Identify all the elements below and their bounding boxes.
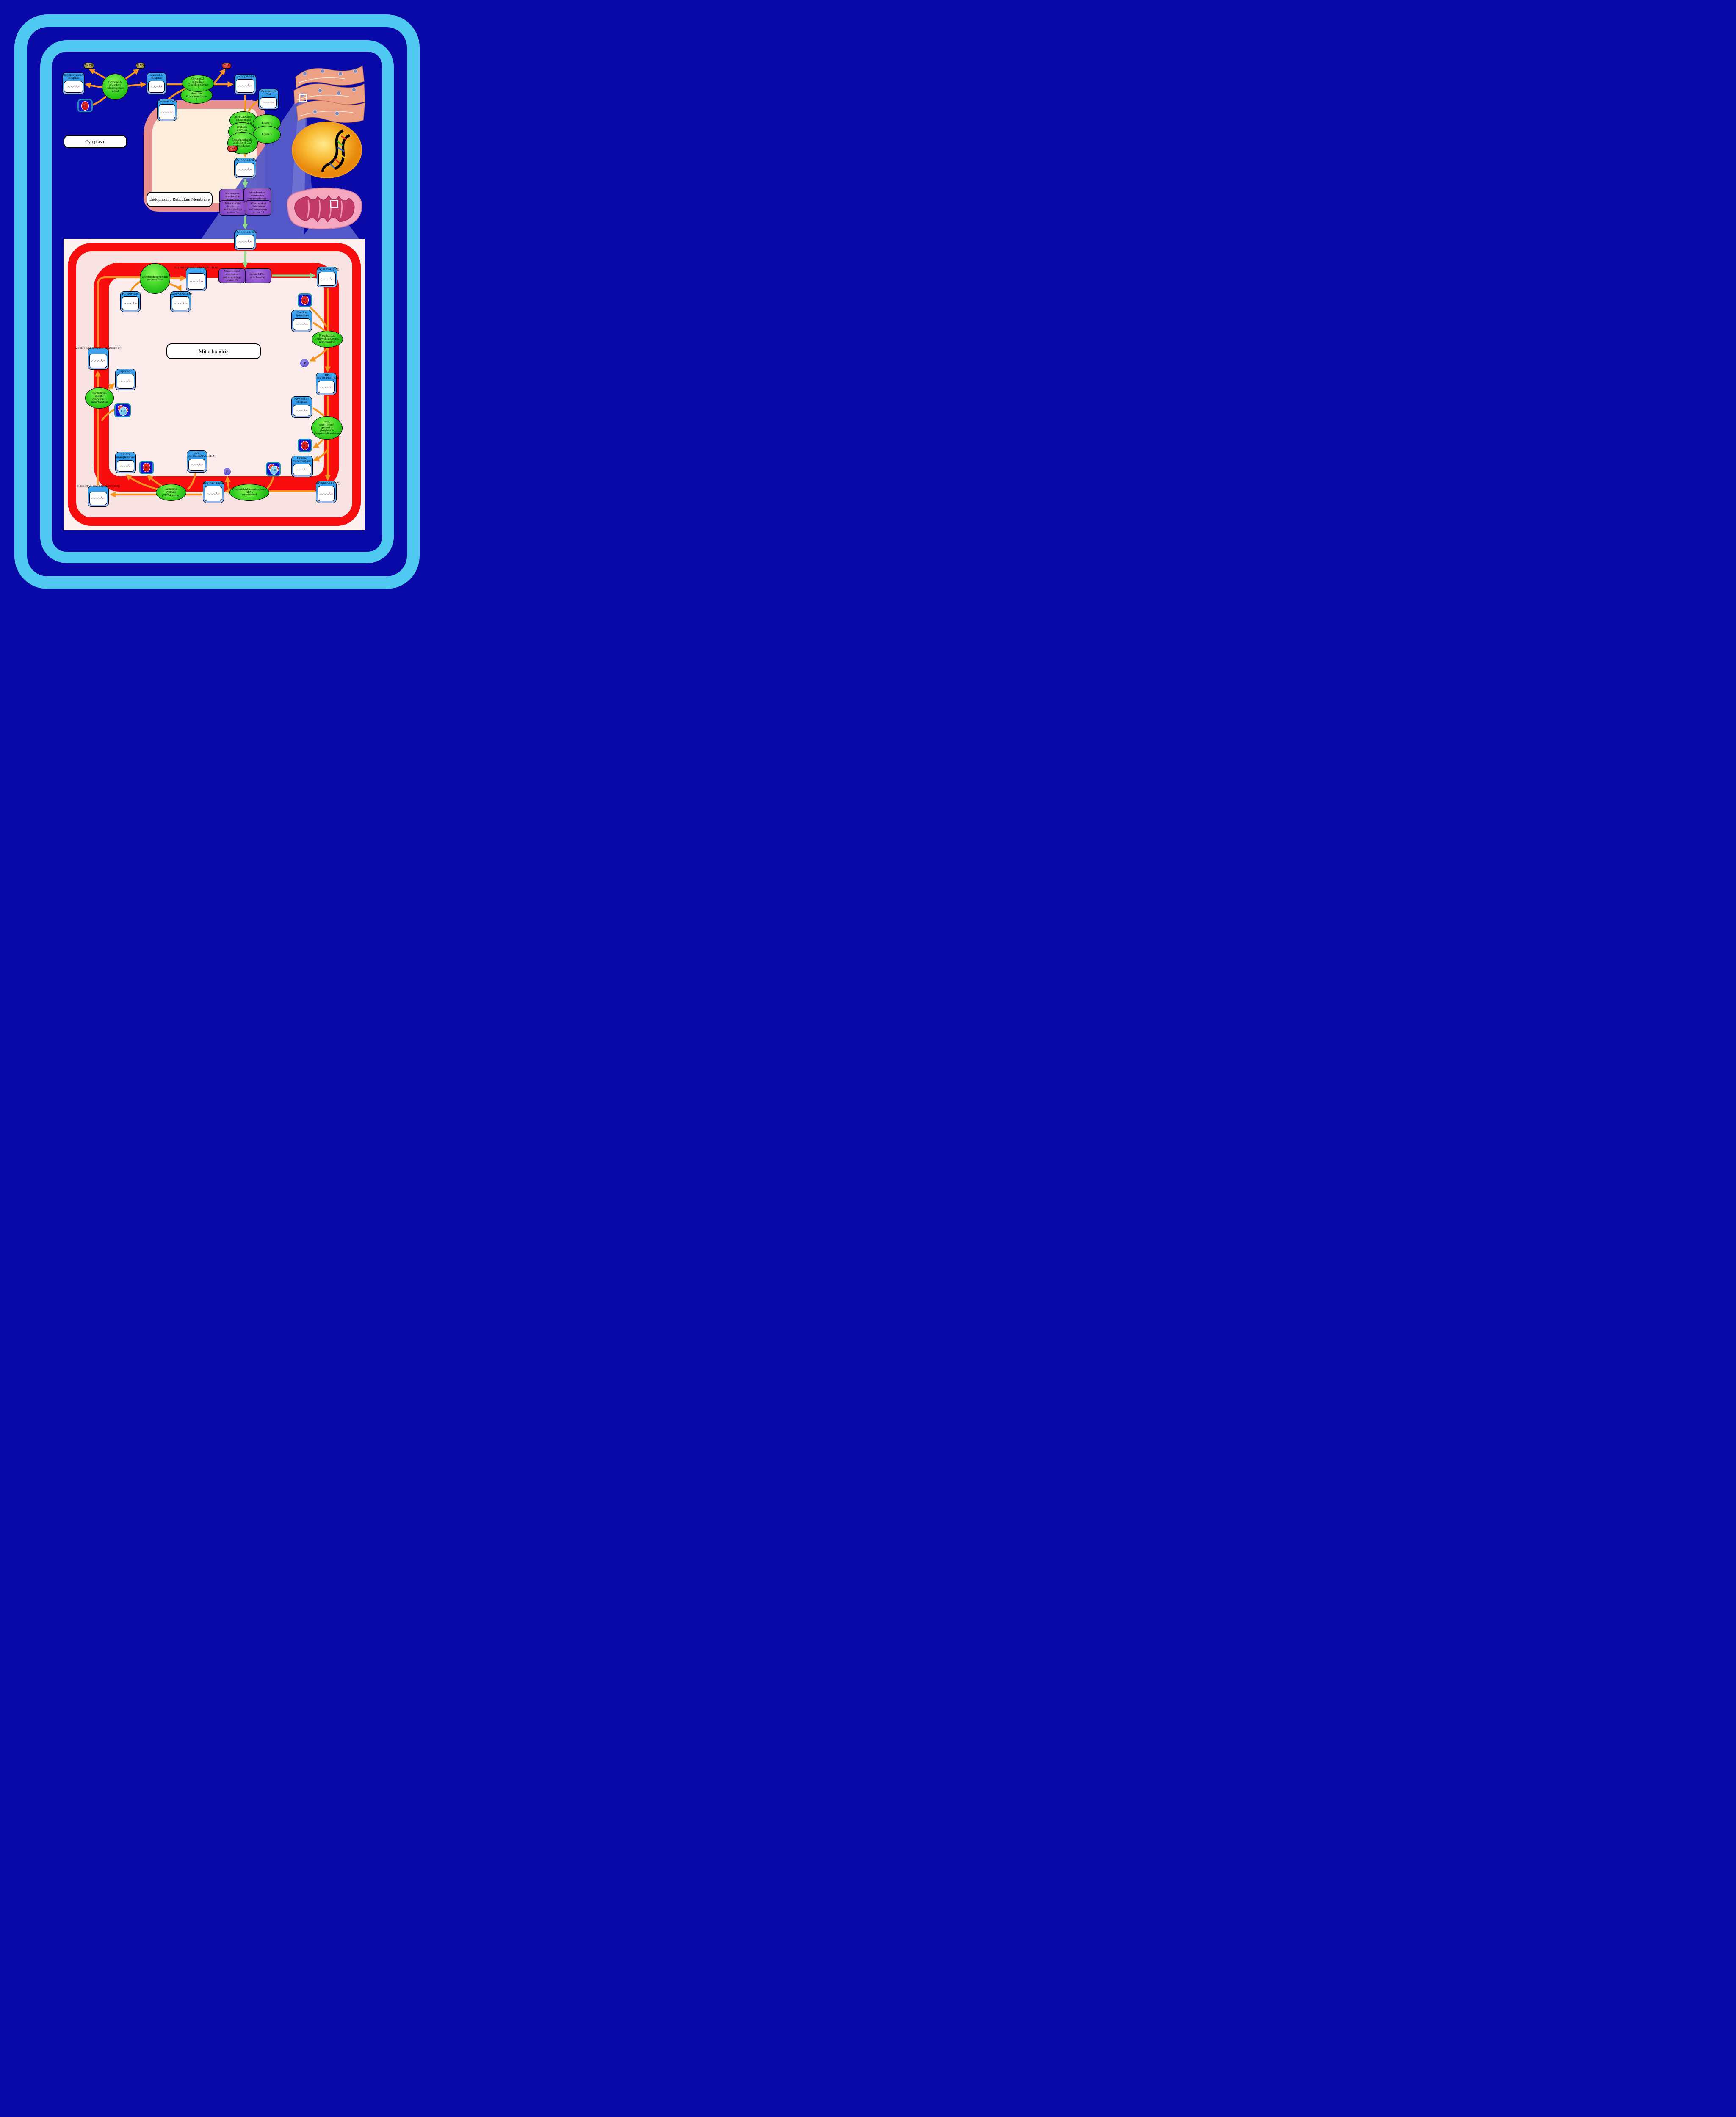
- metabolite-name: LysoPC(10:0/0:0): [171, 292, 191, 296]
- metabolite-dhap[interactable]: Dihydroxyacetone phosphate: [62, 72, 85, 94]
- molecule-structure-icon: [89, 492, 107, 505]
- metabolite-name: LysoPA(10:0/0:0): [235, 75, 256, 79]
- protein-name-line: and morphology: [249, 208, 267, 211]
- metabolite-capric-acid[interactable]: Capric acid: [115, 369, 136, 390]
- enzyme-name-line: O-acyltransferase: [186, 95, 207, 98]
- enzyme-name-line: Glycerol-3-: [191, 77, 205, 80]
- metabolite-lysopc[interactable]: LysoPC(10:0/0:0): [170, 291, 191, 312]
- protein-name-line: protein 10: [253, 211, 264, 214]
- enzyme-name-line: Probable: [237, 126, 247, 129]
- compartment-label-cytoplasm: Cytoplasm: [64, 135, 127, 148]
- enzyme-name-line: phosphatidyltransferase: [314, 432, 340, 435]
- er-zoom-square: [299, 94, 307, 102]
- protein-name-line: Mitochondrial: [225, 202, 241, 205]
- molecule-structure-icon: [159, 104, 175, 119]
- enzyme-gep4[interactable]: PhosphatidylglycerophosphataseGEP4,mitoc…: [229, 484, 269, 501]
- enzyme-name-line: Cardiolipin-: [92, 392, 106, 395]
- molecule-structure-icon: [148, 81, 165, 93]
- metabolite-cdpdg-bottom[interactable]: CDP-DG(15:1(9Z)/25:1(11Z)): [187, 450, 207, 473]
- protein-mdm34[interactable]: Mitochondrialdistributionand morphologyp…: [219, 200, 246, 216]
- enzyme-name-line: mitochondrial: [91, 401, 108, 404]
- token-hplus-topright[interactable]: H+: [298, 293, 312, 307]
- metabolite-name: CDP-DG(10:0/14:1(9Z)): [316, 373, 336, 381]
- hplus-icon: H+: [301, 296, 309, 305]
- metabolite-name: PA(10:0/14:1(9Z)): [235, 230, 256, 235]
- enzyme-name-line: Cardiolipin: [165, 488, 178, 491]
- enzyme-name-line: acid:oleoyl-CoA: [233, 141, 252, 144]
- molecule-structure-icon: [236, 163, 254, 177]
- enzyme-name-line: phosphate: [109, 84, 121, 87]
- enzyme-pcyt-mito[interactable]: Phosphatidatecytidylyltransferase,mitoch…: [312, 331, 343, 348]
- token-nadh[interactable]: NADH: [84, 63, 94, 69]
- molecule-structure-icon: [318, 486, 335, 501]
- metabolite-g3p-er[interactable]: Glycerol 3-phosphate: [147, 72, 166, 94]
- protein-name-line: Maintenance: [225, 192, 240, 195]
- molecule-structure-icon: [117, 374, 134, 389]
- protein-name-line: and morphology: [224, 208, 242, 211]
- metabolite-name: Capric acid: [116, 369, 135, 373]
- metabolite-name: Cytidine monophosphate: [292, 456, 312, 464]
- token-coa-2[interactable]: CoA: [227, 146, 238, 152]
- protein-ups1[interactable]: protein UPS1,mitochondrial: [243, 268, 271, 283]
- molecule-structure-icon: [293, 464, 311, 475]
- mitochondrion-cartoon: [280, 184, 365, 232]
- water-icon: H2O: [117, 405, 128, 415]
- metabolite-name: Glycerol 3-phosphate: [147, 73, 166, 80]
- molecule-structure-icon: [293, 405, 310, 416]
- enzyme-name-line: 1-acyl-sn-: [236, 129, 248, 132]
- molecule-structure-icon: [172, 296, 189, 310]
- metabolite-label-cl-bottom: CL(10:0/14:1(9Z)/15:1(9Z)/25:1(11Z)): [77, 485, 120, 488]
- protein-name-line: and morphology: [223, 276, 241, 279]
- metabolite-name: CDP-DG(15:1(9Z)/25:1(11Z)): [187, 451, 207, 459]
- enzyme-name-line: cytidylyltransferase,: [315, 337, 339, 340]
- metabolite-pg[interactable]: PG(10:0/14:1(9Z)): [203, 481, 224, 503]
- metabolite-decanoyl-coa[interactable]: Decanoyl-CoA: [157, 99, 177, 121]
- molecule-structure-icon: [318, 381, 335, 393]
- metabolite-cl-top[interactable]: [186, 268, 207, 291]
- protein-name-line: distribution: [226, 273, 238, 276]
- enzyme-name-line: Phosphatidate: [319, 334, 335, 337]
- metabolite-name: Cytidine monophosphate: [116, 452, 135, 460]
- protein-name-line: protein 35: [227, 279, 238, 282]
- enzyme-cls[interactable]: Cardiolipinsynthase(CMP-forming): [156, 484, 186, 501]
- molecule-structure-icon: [293, 318, 310, 330]
- enzyme-name-line: Lysophosphatidic: [232, 138, 253, 141]
- enzyme-name-line: mitochondrial: [242, 494, 257, 496]
- enzyme-name-line: (CMP-forming): [162, 494, 180, 497]
- metabolite-name: PA(10:0/14:1(9Z)): [317, 267, 337, 271]
- protein-name-line: mitochondrial: [250, 276, 265, 279]
- compartment-label-mitochondria: Mitochondria: [166, 343, 261, 359]
- token-h2o-left[interactable]: H2O: [114, 403, 131, 417]
- molecule-structure-icon: [205, 486, 222, 501]
- metabolite-name: PA(10:0/14:1(9Z)): [235, 158, 256, 163]
- metabolite-pa-mid[interactable]: PA(10:0/14:1(9Z)): [234, 230, 256, 250]
- protein-name-line: Mitochondrial: [224, 270, 240, 273]
- molecule-structure-icon: [122, 296, 139, 310]
- metabolite-pc[interactable]: PC(10:0/10:0): [120, 291, 141, 312]
- protein-name-line: mitochondrial: [225, 195, 240, 198]
- protein-name-line: distribution: [252, 205, 265, 208]
- token-pi[interactable]: Pi: [223, 467, 231, 476]
- metabolite-pa-right[interactable]: PA(10:0/14:1(9Z)): [317, 267, 337, 287]
- molecule-structure-icon: [117, 460, 134, 472]
- metabolite-name: PGP(10:0/14:1(9Z)): [316, 481, 336, 486]
- token-coa-1[interactable]: CoA: [222, 63, 231, 69]
- protein-name-line: Mitochondrial: [250, 202, 266, 205]
- enzyme-name-line: Glycerol-3-: [108, 81, 122, 84]
- molecule-structure-icon: [260, 97, 277, 108]
- metabolite-name: Cytidine triphosphate: [292, 310, 312, 318]
- enzyme-name-line: Lipase 4: [262, 122, 271, 124]
- enzyme-name-line: mitochondrial: [319, 341, 335, 344]
- token-ppi[interactable]: PPi: [300, 359, 309, 368]
- enzyme-name-line: acyltransferase: [147, 279, 163, 281]
- metabolite-name: Decanoyl-CoA: [158, 99, 177, 104]
- metabolite-cl-bottom[interactable]: [88, 486, 109, 507]
- token-hplus-cyto[interactable]: H+: [77, 99, 93, 112]
- protein-name-line: distribution: [227, 205, 239, 208]
- token-hplus-bottomright[interactable]: H+: [298, 439, 312, 452]
- hplus-icon: H+: [301, 441, 309, 450]
- enzyme-name-line: GPD2: [112, 90, 119, 93]
- enzyme-name-line: 1: [197, 86, 199, 89]
- protein-mdm10[interactable]: Mitochondrialdistributionand morphologyp…: [245, 200, 271, 216]
- enzyme-name-line: phosphate: [192, 80, 204, 83]
- hplus-icon: H+: [143, 463, 150, 472]
- metabolite-cmp-left[interactable]: Cytidine monophosphate: [115, 452, 136, 473]
- enzyme-gpd2[interactable]: Glycerol-3-phosphatedehydrogenaseGPD2: [102, 74, 128, 100]
- enzyme-name-line: Acyl-CoA:lyso-: [234, 116, 253, 119]
- metabolite-name: Myristoleoyl-CoA: [259, 89, 278, 97]
- enzyme-name-line: phospholipid: [236, 119, 251, 122]
- metabolite-cdpdg-right[interactable]: CDP-DG(10:0/14:1(9Z)): [316, 373, 337, 395]
- enzyme-cds-g3p[interactable]: CDP-diacylglycerol--glycerol-3-phosphate…: [311, 416, 343, 440]
- metabolite-name: PC(10:0/10:0): [121, 292, 140, 296]
- metabolite-label-cl-top: CL(10:0/14:1(9Z)/15:1(9Z)/25:1(11Z)): [175, 266, 218, 269]
- molecule-structure-icon: [236, 79, 254, 93]
- mito-zoom-square: [330, 200, 338, 208]
- protein-name-line: protein 34: [227, 211, 239, 214]
- protein-mdm35[interactable]: Mitochondrialdistributionand morphologyp…: [218, 268, 246, 283]
- token-nad[interactable]: NAD: [136, 63, 145, 69]
- enzyme-gpat1[interactable]: Glycerol-3-phosphateO-acyltransferase1: [182, 75, 214, 92]
- enzyme-cld1[interactable]: Cardiolipin-specificdeacylase 1,mitochon…: [85, 387, 114, 409]
- molecule-structure-icon: [64, 81, 83, 93]
- enzyme-name-line: specific: [95, 395, 104, 398]
- metabolite-g3p-right[interactable]: Glycerol 3-phosphate: [291, 396, 312, 418]
- molecule-structure-icon: [188, 459, 205, 471]
- metabolite-name: Dihydroxyacetone phosphate: [63, 73, 84, 80]
- hplus-icon: H+: [81, 101, 89, 111]
- metabolite-cmp-right[interactable]: Cytidine monophosphate: [291, 456, 313, 477]
- enzyme-name-line: deacylase 1,: [92, 398, 106, 401]
- token-hplus-bottomleft[interactable]: H+: [139, 461, 154, 474]
- metabolite-myristoleoyl-coa[interactable]: Myristoleoyl-CoA: [258, 89, 279, 110]
- enzyme-name-line: O-acyltransferase: [188, 83, 208, 86]
- enzyme-name-line: dehydrogenase: [107, 87, 124, 90]
- molecule-structure-icon: [188, 273, 205, 290]
- water-icon: H2O: [268, 464, 279, 474]
- enzyme-name-line: 2: [196, 98, 197, 101]
- protein-name-line: protein UPS1,: [249, 273, 265, 276]
- molecule-structure-icon: [236, 235, 254, 249]
- metabolite-pa-er[interactable]: PA(10:0/14:1(9Z)): [234, 158, 256, 178]
- enzyme-name-line: phosphate: [191, 92, 202, 95]
- metabolite-lysopa[interactable]: LysoPA(10:0/0:0): [234, 74, 256, 94]
- nucleus-cartoon: [291, 121, 362, 179]
- metabolite-name: Glycerol 3-phosphate: [292, 397, 312, 404]
- metabolite-mlcl[interactable]: [88, 348, 109, 370]
- pathway-canvas: Dihydroxyacetone phosphateGlycerol 3-pho…: [0, 0, 434, 603]
- molecule-structure-icon: [89, 354, 107, 368]
- token-h2o-right[interactable]: H2O: [266, 462, 281, 476]
- metabolite-ctp[interactable]: Cytidine triphosphate: [291, 310, 312, 332]
- enzyme-name-line: Lipase 5: [262, 133, 271, 136]
- enzyme-name-line: synthase: [166, 491, 176, 494]
- metabolite-pgp[interactable]: PGP(10:0/14:1(9Z)): [316, 481, 337, 503]
- metabolite-name: PG(10:0/14:1(9Z)): [203, 481, 224, 486]
- metabolite-label-mlcl: MLCL(0:0/14:1(9Z)/15:1(9Z)/25:1(11Z)): [75, 347, 121, 350]
- molecule-structure-icon: [318, 272, 336, 286]
- compartment-label-er-membrane: Endoplasmic Reticulum Membrane: [147, 192, 213, 207]
- protein-name-line: distribution: [251, 194, 264, 197]
- protein-name-line: Mitochondrial: [249, 191, 265, 194]
- enzyme-lpcat[interactable]: Lysophosphatidylcholineacyltransferase: [140, 263, 170, 294]
